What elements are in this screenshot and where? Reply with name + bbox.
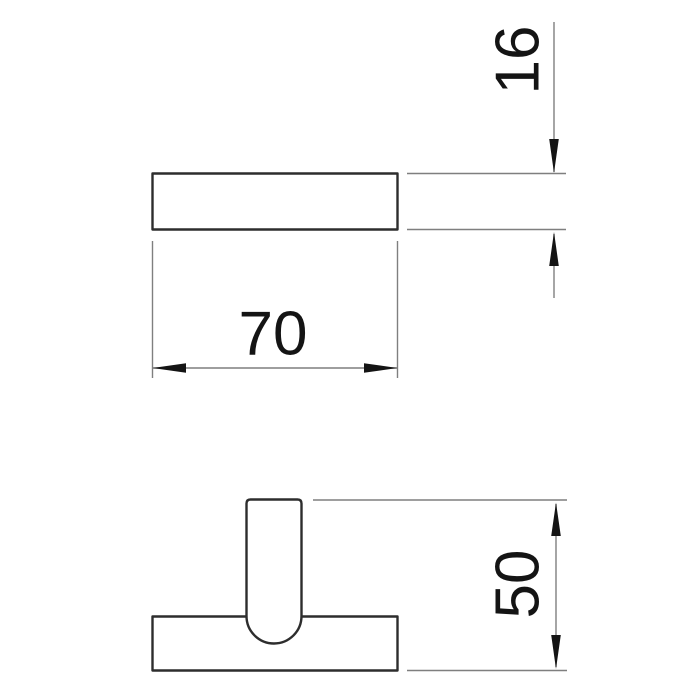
arrowhead-right [364,363,398,373]
technical-drawing: 16 70 [0,0,700,700]
arrowhead-down [549,139,559,173]
dimension-height: 50 [313,500,567,671]
dimension-width: 70 [153,241,398,378]
top-view-plate-outline [153,174,398,230]
arrowhead-down [551,635,561,669]
drawing-svg: 16 70 [0,0,700,700]
arrowhead-up [551,503,561,537]
dimension-label-height: 50 [484,550,553,619]
front-view-stem-outline [247,500,302,644]
arrowhead-left [153,363,187,373]
front-view: 50 [153,500,568,671]
arrowhead-up [549,232,559,266]
top-view: 16 70 [153,22,567,378]
dimension-label-width: 70 [239,300,308,369]
dimension-label-thickness: 16 [484,26,553,95]
dimension-thickness: 16 [407,22,566,298]
